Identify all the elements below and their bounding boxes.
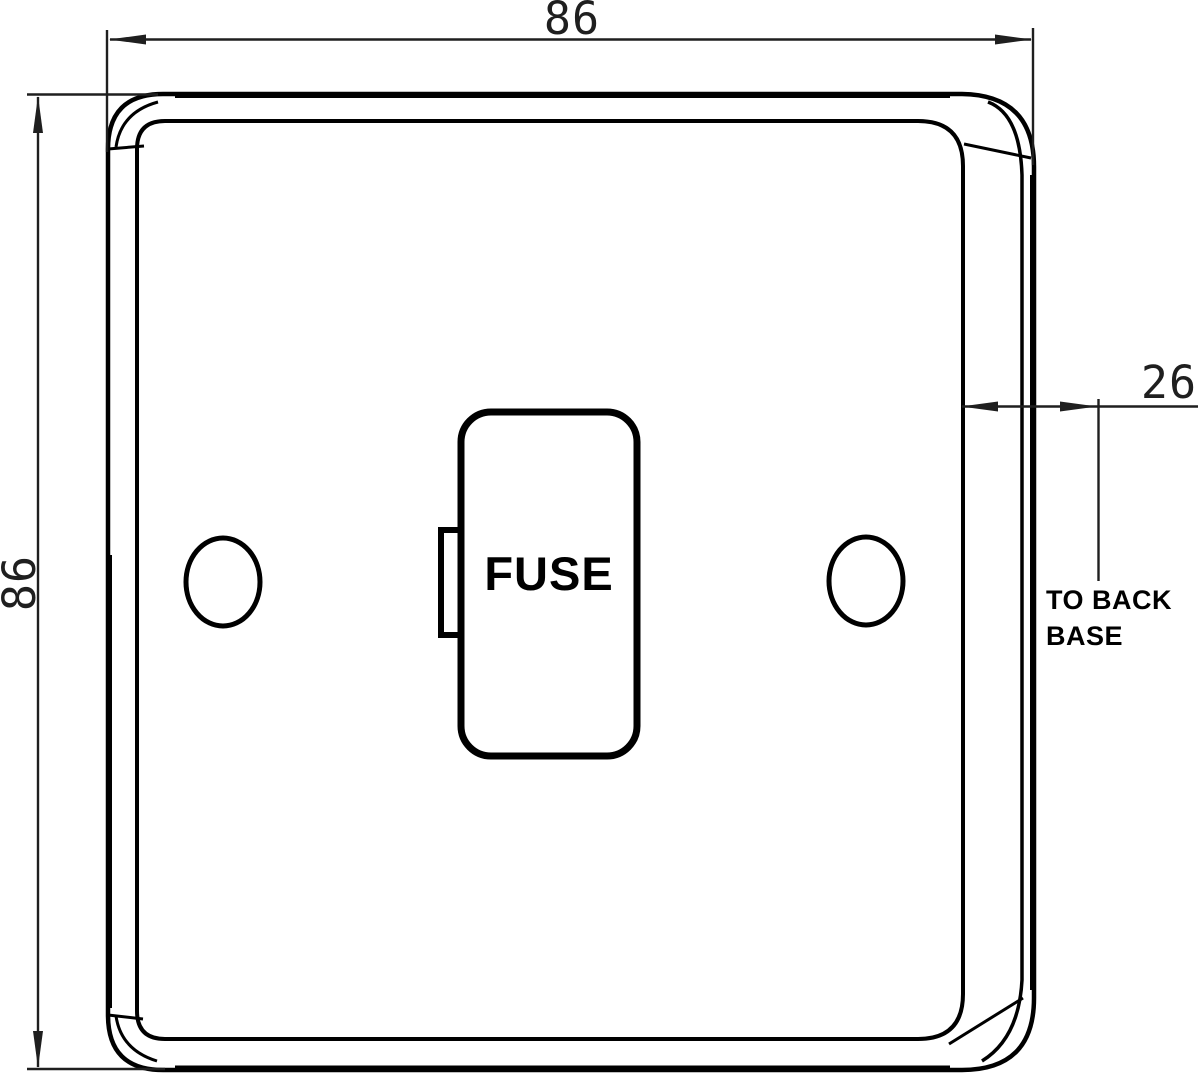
corner-crease-bottom-right	[949, 998, 1023, 1044]
arrowhead-width-left	[109, 35, 146, 45]
dim-depth-value: 26	[1134, 360, 1200, 405]
technical-drawing-canvas: 86 86 26 TO BACK BASE FUSE	[0, 0, 1200, 1077]
depth-note: TO BACK BASE	[1046, 582, 1172, 654]
screw-hole-left	[186, 538, 260, 626]
arrowhead-depth-left	[961, 402, 998, 412]
arrowhead-width-right	[995, 35, 1032, 45]
dim-height-value: 86	[0, 545, 43, 621]
plate-side-contour	[982, 102, 1022, 1061]
fuse-label: FUSE	[449, 550, 649, 597]
dim-width-value: 86	[534, 0, 610, 41]
arrowhead-depth-right	[1060, 402, 1097, 412]
screw-hole-right	[829, 537, 903, 625]
depth-note-line2: BASE	[1046, 618, 1172, 654]
arrowhead-height-top	[33, 96, 43, 133]
depth-note-line1: TO BACK	[1046, 582, 1172, 618]
arrowhead-height-bottom	[33, 1031, 43, 1068]
drawing-linework	[0, 0, 1200, 1077]
